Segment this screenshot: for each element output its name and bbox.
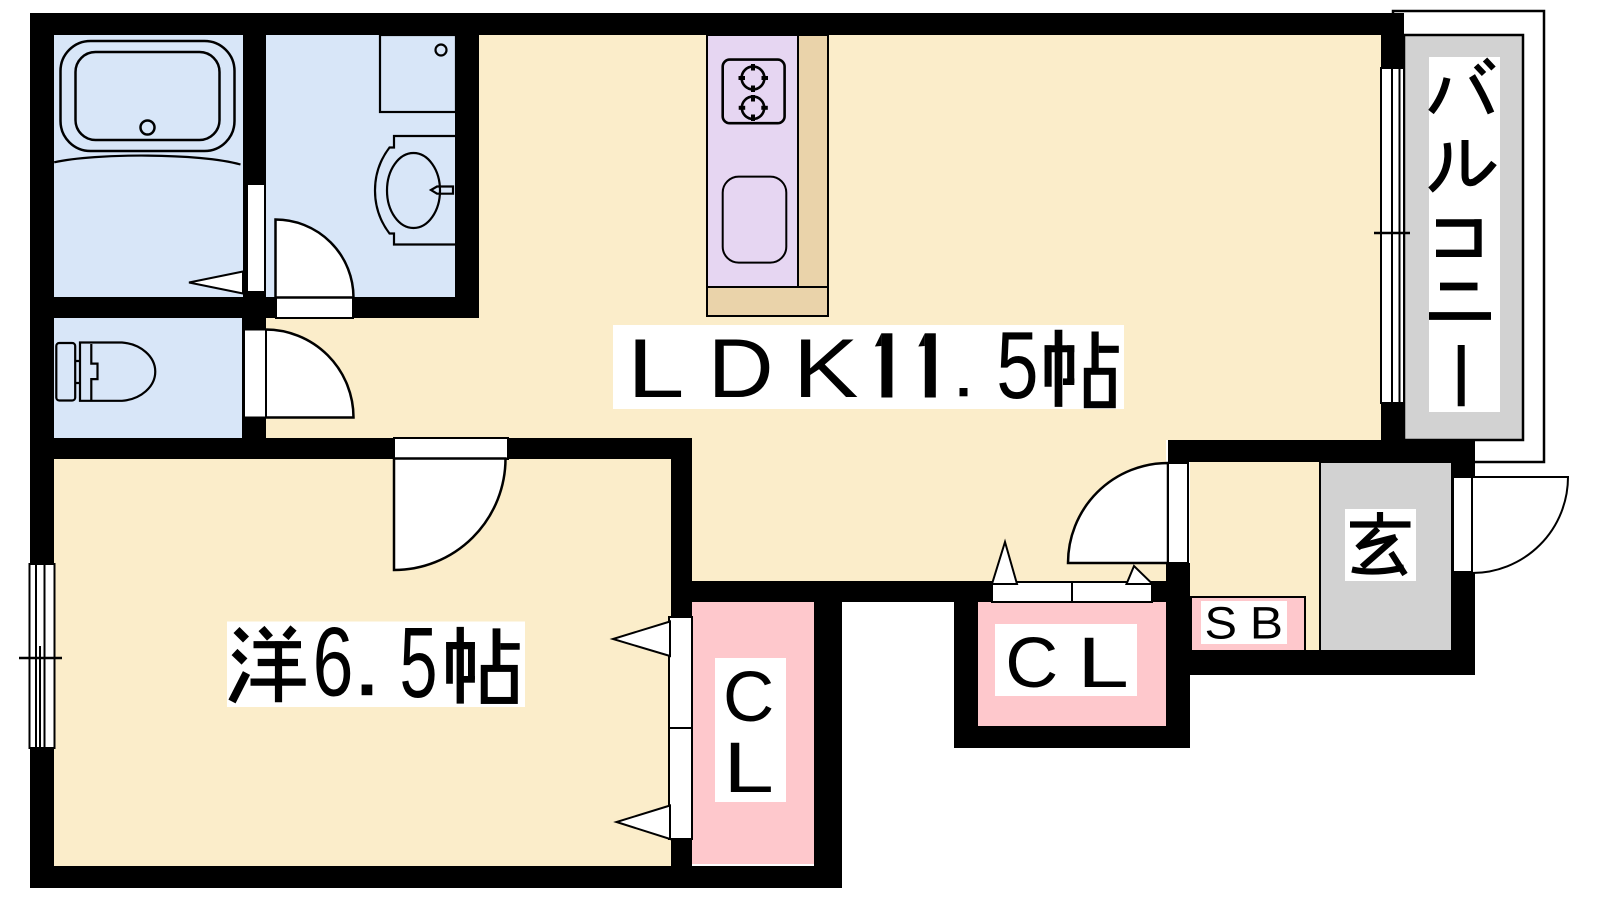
svg-text:K: K bbox=[793, 321, 859, 415]
svg-text:D: D bbox=[708, 321, 774, 415]
svg-text:5: 5 bbox=[399, 607, 437, 719]
svg-text:5: 5 bbox=[996, 312, 1038, 419]
svg-text:C: C bbox=[1005, 623, 1058, 703]
svg-text:C: C bbox=[723, 657, 774, 737]
svg-text:L: L bbox=[1077, 623, 1129, 703]
svg-text:L: L bbox=[723, 728, 774, 808]
svg-text:S: S bbox=[1205, 598, 1238, 649]
svg-text:6: 6 bbox=[313, 607, 354, 717]
svg-text:B: B bbox=[1250, 598, 1283, 649]
svg-text:L: L bbox=[627, 321, 685, 415]
